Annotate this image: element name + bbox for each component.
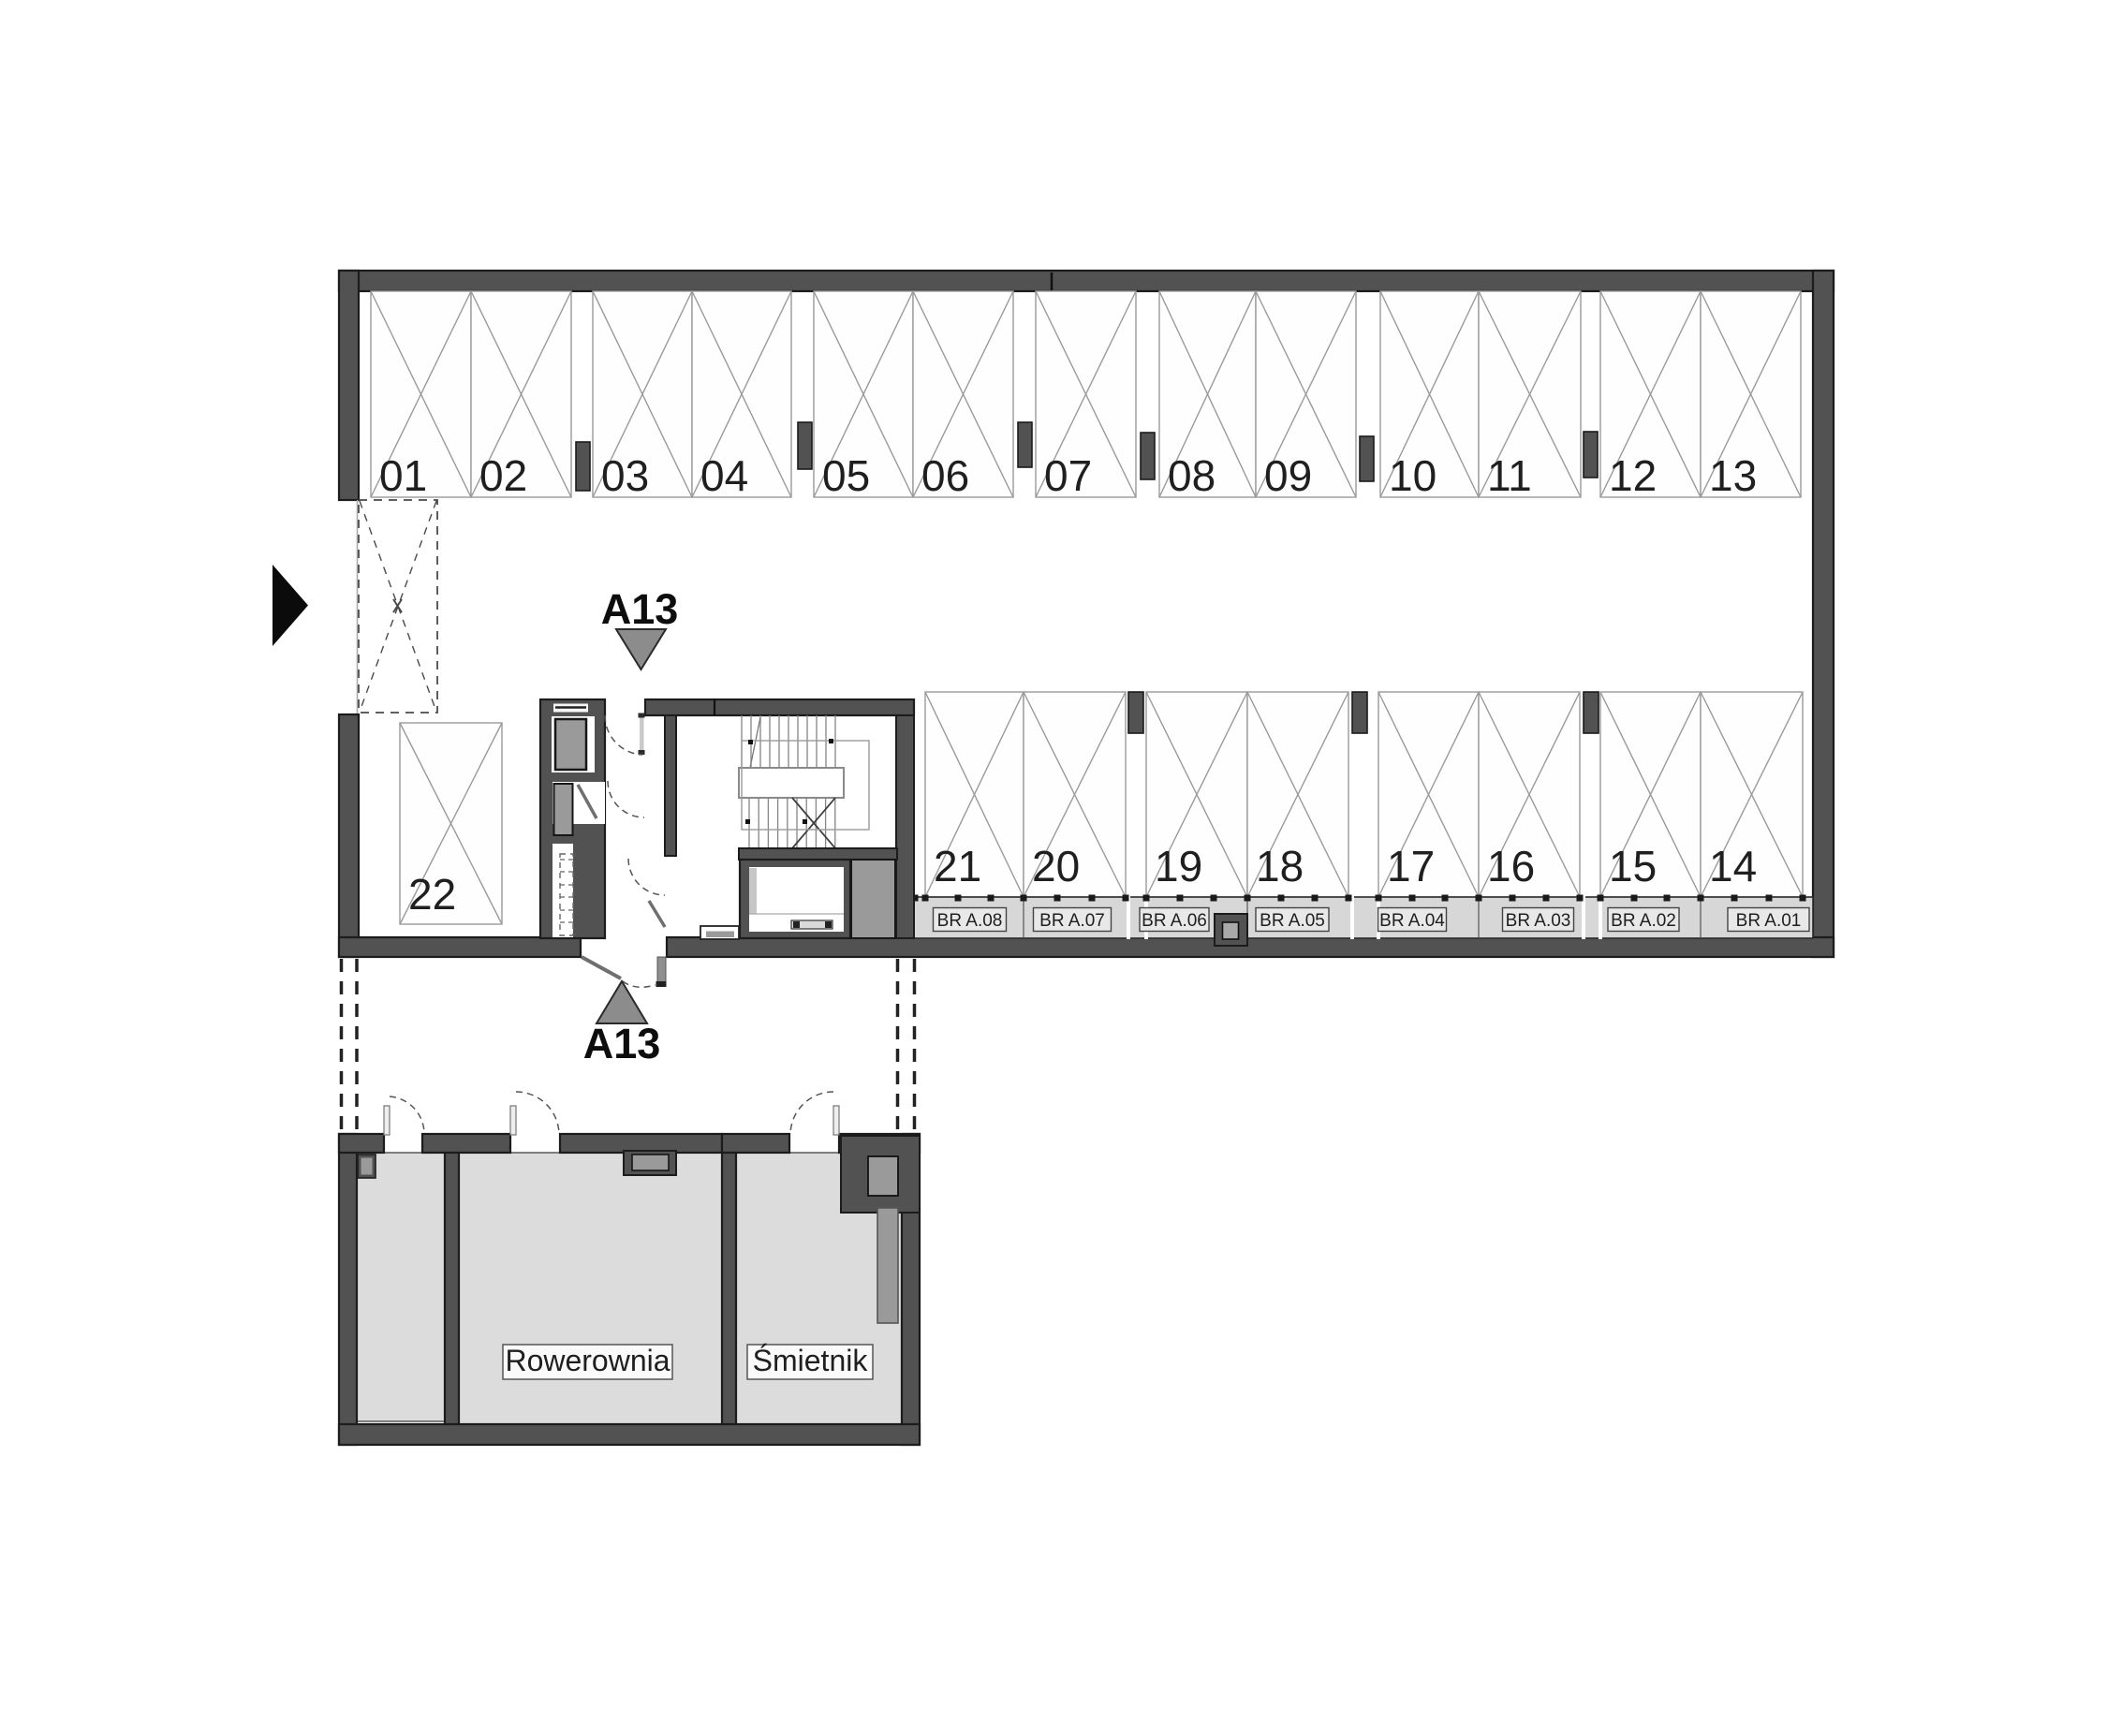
svg-text:A13: A13 [583,1020,661,1067]
svg-text:BR A.03: BR A.03 [1506,911,1571,931]
svg-text:BR A.08: BR A.08 [937,911,1003,931]
svg-text:22: 22 [408,870,456,919]
svg-text:01: 01 [379,451,427,500]
svg-text:18: 18 [1256,842,1304,890]
svg-text:16: 16 [1487,842,1535,890]
svg-text:02: 02 [479,451,527,500]
svg-text:BR A.02: BR A.02 [1611,911,1676,931]
svg-text:BR A.05: BR A.05 [1260,911,1325,931]
svg-text:12: 12 [1609,451,1657,500]
svg-text:11: 11 [1487,451,1532,500]
svg-text:17: 17 [1387,842,1435,890]
svg-text:10: 10 [1389,451,1437,500]
svg-text:BR A.01: BR A.01 [1736,911,1802,931]
svg-text:06: 06 [921,451,969,500]
svg-text:13: 13 [1709,451,1757,500]
svg-text:19: 19 [1155,842,1202,890]
svg-text:08: 08 [1168,451,1216,500]
svg-text:14: 14 [1709,842,1757,890]
svg-text:A13: A13 [601,585,679,633]
svg-text:BR A.04: BR A.04 [1379,911,1445,931]
svg-text:04: 04 [700,451,748,500]
svg-text:05: 05 [822,451,870,500]
svg-text:20: 20 [1032,842,1080,890]
svg-text:BR A.07: BR A.07 [1039,911,1105,931]
svg-text:15: 15 [1609,842,1657,890]
svg-text:07: 07 [1044,451,1092,500]
svg-text:Rowerownia: Rowerownia [505,1344,670,1377]
svg-text:21: 21 [934,842,981,890]
svg-text:09: 09 [1264,451,1312,500]
svg-text:BR A.06: BR A.06 [1142,911,1207,931]
svg-text:Śmietnik: Śmietnik [753,1344,869,1377]
svg-text:03: 03 [601,451,649,500]
